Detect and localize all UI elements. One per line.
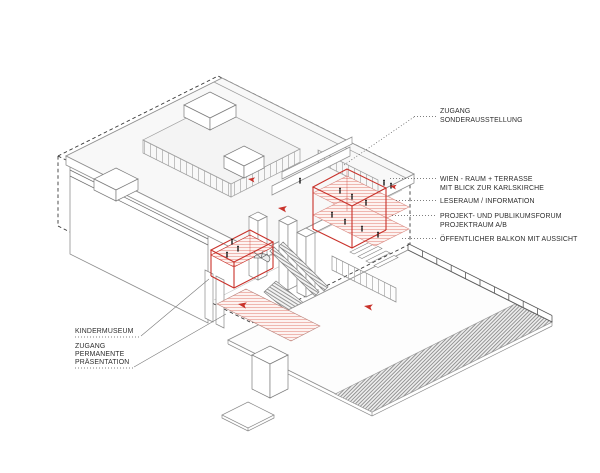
annotation-text: ÖFFENTLICHER BALKON MIT AUSSICHT (440, 235, 578, 243)
scale-figure (299, 178, 301, 184)
label-zugang-permanente: ZUGANG PERMANENTE PRÄSENTATION (75, 314, 226, 368)
scale-figure (361, 226, 363, 232)
label-balkon: ÖFFENTLICHER BALKON MIT AUSSICHT (402, 235, 578, 243)
scale-figure (365, 200, 367, 206)
scale-figure (351, 194, 353, 200)
scale-figure (390, 183, 392, 189)
annotation-text: PERMANENTE (75, 351, 125, 358)
columns-below-kindermuseum (205, 270, 224, 328)
scale-figure (339, 188, 341, 194)
leader-line (134, 314, 226, 367)
annotation-text: PRÄSENTATION (75, 358, 129, 366)
ground-plaza (222, 244, 552, 432)
label-leseraum: LESERAUM / INFORMATION (396, 198, 535, 205)
scale-figure (331, 212, 333, 218)
label-projektforum: PROJEKT- UND PUBLIKUMSFORUM PROJEKTRAUM … (392, 213, 562, 229)
scale-figure (383, 180, 385, 186)
scale-figure (237, 246, 239, 252)
scale-figure (377, 232, 379, 238)
annotation-text: LESERAUM / INFORMATION (440, 198, 535, 205)
scale-figure (344, 219, 346, 225)
annotation-text: ZUGANG (75, 343, 105, 350)
annotation-text: KINDERMUSEUM (75, 328, 134, 335)
annotation-text: MIT BLICK ZUR KARLSKIRCHE (440, 185, 544, 192)
scale-figure (231, 239, 233, 245)
annotation-text: PROJEKTRAUM A/B (440, 222, 507, 229)
plaza-kiosk-box (252, 346, 288, 398)
annotation-text: SONDERAUSSTELLUNG (440, 117, 523, 124)
annotation-text: ZUGANG (440, 108, 470, 115)
plaza-pad (222, 402, 274, 431)
axonometric-diagram: ZUGANG SONDERAUSSTELLUNG WIEN - RAUM + T… (0, 0, 600, 473)
scale-figure (226, 252, 228, 258)
annotation-text: WIEN - RAUM + TERRASSE (440, 176, 533, 183)
annotation-text: PROJEKT- UND PUBLIKUMSFORUM (440, 213, 562, 220)
